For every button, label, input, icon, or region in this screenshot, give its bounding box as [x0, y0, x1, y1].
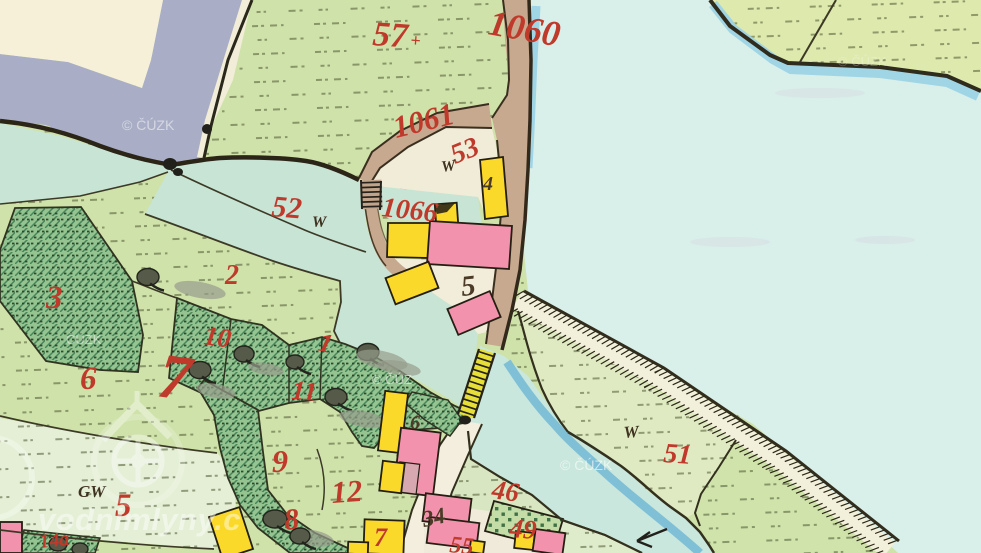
svg-text:55: 55 [448, 532, 475, 553]
svg-text:49: 49 [508, 513, 539, 545]
svg-text:© ČÚZK: © ČÚZK [560, 457, 613, 473]
svg-text:51: 51 [663, 438, 693, 471]
svg-text:6: 6 [80, 361, 97, 397]
svg-text:52: 52 [270, 190, 303, 225]
svg-text:ČÚZK: ČÚZK [66, 332, 102, 347]
svg-text:© ČÚZK: © ČÚZK [122, 117, 175, 133]
svg-text:© ČÚZK: © ČÚZK [838, 54, 887, 69]
svg-text:9: 9 [272, 443, 288, 479]
svg-text:6: 6 [410, 412, 420, 434]
svg-text:46: 46 [489, 474, 521, 508]
svg-text:W: W [312, 214, 328, 231]
svg-text:7: 7 [374, 523, 388, 552]
svg-text:12: 12 [330, 473, 363, 510]
svg-text:11: 11 [291, 375, 319, 407]
svg-text:© ČÚZ: © ČÚZ [372, 372, 412, 387]
svg-text:10: 10 [202, 320, 233, 354]
svg-text:1066: 1066 [380, 192, 439, 229]
svg-text:57: 57 [371, 14, 410, 55]
svg-text:+: + [410, 30, 422, 51]
svg-text:2: 2 [224, 260, 239, 291]
svg-text:3: 3 [45, 280, 63, 316]
svg-text:34: 34 [419, 503, 448, 532]
svg-text:vodnimlyny.c: vodnimlyny.c [38, 502, 241, 537]
svg-text:4: 4 [482, 173, 493, 195]
